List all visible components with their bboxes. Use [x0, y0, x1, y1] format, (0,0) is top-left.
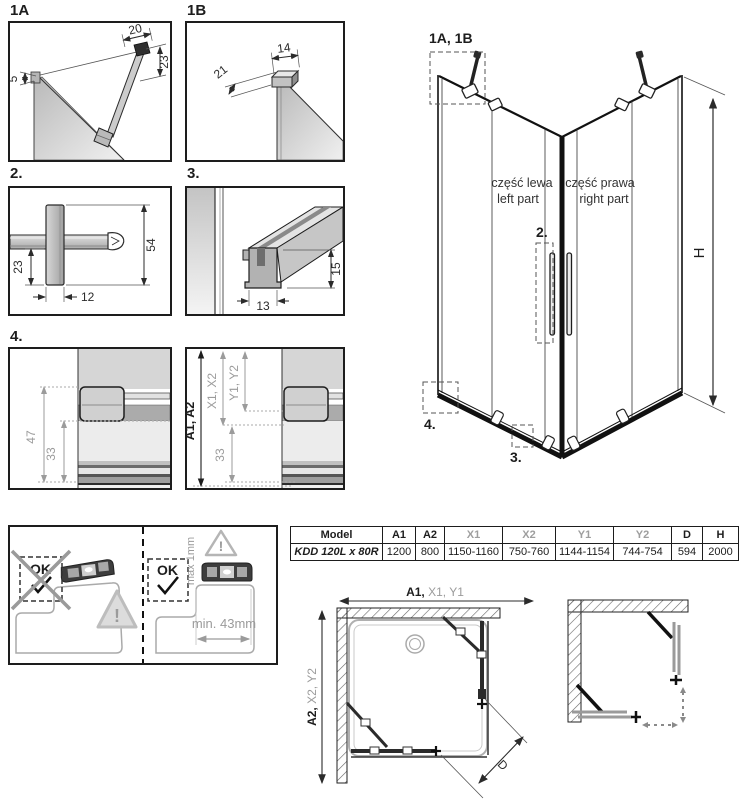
svg-text:15: 15: [329, 262, 343, 276]
dim-14: 14: [270, 40, 300, 75]
spec-table: Model A1 A2 X1 X2 Y1 Y2 D H KDD 120L x 8…: [290, 526, 739, 561]
left-part-label-pl: część lewa: [491, 176, 552, 190]
spec-value-row: KDD 120L x 80R 1200 800 1150-1160 750-76…: [291, 544, 739, 561]
glass-pane: [187, 188, 215, 314]
right-wall-support: [614, 50, 655, 111]
left-wall-support: [462, 50, 503, 111]
col-model: Model: [291, 527, 383, 544]
callout-3-label: 3.: [510, 449, 522, 465]
callout-2-label: 2.: [536, 224, 548, 240]
wall-left: [568, 600, 581, 722]
svg-text:13: 13: [256, 299, 270, 313]
detail-4-ref: 4.: [10, 328, 23, 345]
col-y1: Y1: [556, 527, 614, 544]
dim-23: 23: [11, 249, 44, 285]
svg-text:A2, X2, Y2: A2, X2, Y2: [305, 668, 319, 726]
support-bar-right: [648, 612, 672, 638]
svg-text:23: 23: [157, 55, 170, 69]
svg-text:X1, X2: X1, X2: [205, 373, 219, 409]
svg-text:!: !: [114, 606, 120, 626]
leveling-drawing: OK ! OK max 1mm ! min. 43mm: [10, 527, 276, 663]
dim-12: 12: [33, 287, 95, 304]
rail-end-hook: [108, 233, 124, 250]
top-profile-front: [272, 77, 292, 87]
detail-2-drawing: 54 23 12: [10, 188, 170, 314]
dim-depth: A2, X2, Y2: [305, 611, 322, 783]
max-gap-label: max 1mm: [185, 537, 197, 585]
detail-4-right-drawing: A1, A2 X1, X2 Y1, Y2 33: [187, 349, 343, 488]
left-part-label-en: left part: [497, 192, 539, 206]
val-d: 594: [672, 544, 703, 561]
svg-text:54: 54: [144, 238, 158, 252]
callout-1ab-label: 1A, 1B: [429, 30, 473, 46]
col-x2: X2: [503, 527, 556, 544]
bottom-rail-stack: [282, 461, 343, 488]
plan-view: A1, X1, Y1 A2, X2, Y2 D: [295, 585, 545, 800]
glass-lower: [78, 421, 170, 461]
right-part-label-en: right part: [579, 192, 629, 206]
glass-pane: [34, 77, 124, 160]
dim-13: 13: [237, 290, 289, 313]
spirit-level-flat: [202, 563, 252, 581]
detail-3-drawing: 15 13: [187, 188, 343, 314]
col-a2: A2: [416, 527, 445, 544]
check-icon-good: [158, 577, 178, 593]
seal-strip: [328, 393, 343, 399]
detail-1b-panel: 14 21: [185, 21, 345, 162]
svg-text:33: 33: [213, 448, 227, 462]
detail-2-panel: 54 23 12: [8, 186, 172, 316]
wall-support-bar: [107, 50, 144, 137]
wall-bracket: [80, 387, 124, 421]
svg-text:20: 20: [127, 23, 143, 38]
dim-x1-x2: X1, X2: [205, 352, 223, 425]
warning-triangle-outline: !: [206, 531, 236, 555]
col-h: H: [703, 527, 739, 544]
wall-top: [568, 600, 688, 612]
svg-text:23: 23: [11, 260, 25, 274]
detail-3-panel: 15 13: [185, 186, 345, 316]
val-y2: 744-754: [614, 544, 672, 561]
detail-1a-panel: 20 23 5: [8, 21, 172, 162]
svg-text:A1, X1, Y1: A1, X1, Y1: [406, 585, 464, 599]
svg-text:5: 5: [10, 75, 20, 82]
reference-line: [36, 51, 141, 76]
detail-2-ref: 2.: [10, 165, 23, 182]
val-a2: 800: [416, 544, 445, 561]
detail-4-right-panel: A1, A2 X1, X2 Y1, Y2 33: [185, 347, 345, 490]
svg-text:14: 14: [276, 40, 291, 56]
spec-header-row: Model A1 A2 X1 X2 Y1 Y2 D H: [291, 527, 739, 544]
dim-a1-a2: A1, A2: [187, 351, 201, 486]
col-d: D: [672, 527, 703, 544]
col-y2: Y2: [614, 527, 672, 544]
svg-text:12: 12: [81, 290, 95, 304]
right-part-label-pl: część prawa: [565, 176, 635, 190]
svg-text:21: 21: [211, 62, 230, 81]
ok-label-good: OK: [157, 562, 178, 578]
wall-top: [337, 608, 500, 618]
detail-3-ref: 3.: [187, 165, 200, 182]
detail-1a-drawing: 20 23 5: [10, 23, 170, 160]
leveling-panel: OK ! OK max 1mm ! min. 43mm: [8, 525, 278, 665]
val-h: 2000: [703, 544, 739, 561]
val-y1: 1144-1154: [556, 544, 614, 561]
model-name: KDD 120L x 80R: [291, 544, 383, 561]
wall-anchor: [134, 42, 150, 56]
bottom-rail-stack: [78, 461, 170, 488]
detail-1b-drawing: 14 21: [187, 23, 343, 160]
dim-33: 33: [44, 421, 64, 482]
val-x2: 750-760: [503, 544, 556, 561]
svg-text:47: 47: [24, 430, 38, 444]
detail-1b-ref: 1B: [187, 2, 206, 19]
handle-bar: [46, 205, 64, 285]
detail-4-left-panel: 47 33: [8, 347, 172, 490]
seal-strip: [124, 393, 170, 399]
left-door-handle: [550, 253, 555, 335]
svg-text:33: 33: [44, 447, 58, 461]
dim-33: 33: [213, 427, 232, 482]
glass-pane: [277, 81, 343, 160]
svg-text:H: H: [691, 248, 708, 259]
dim-21: 21: [211, 62, 277, 97]
dim-y1-y2: Y1, Y2: [227, 352, 245, 411]
svg-text:Y1, Y2: Y1, Y2: [227, 365, 241, 401]
installation-datasheet-page: 1A 1B 2. 3. 4. 20 23: [0, 0, 750, 800]
wall-left: [337, 608, 347, 783]
glass-lower: [282, 421, 343, 461]
door-opening-schematic: [552, 592, 747, 737]
spirit-level-tilted: [60, 559, 115, 582]
val-a1: 1200: [383, 544, 416, 561]
dim-47: 47: [24, 387, 44, 482]
dim-width: A1, X1, Y1: [340, 585, 533, 601]
val-x1: 1150-1160: [445, 544, 503, 561]
wall-bracket: [284, 387, 328, 421]
svg-text:!: !: [219, 538, 224, 554]
glass-upper: [282, 349, 343, 389]
col-a1: A1: [383, 527, 416, 544]
glass-upper: [78, 349, 170, 389]
col-x1: X1: [445, 527, 503, 544]
svg-text:D: D: [495, 757, 511, 773]
right-door-handle: [567, 253, 572, 335]
detail-4-left-drawing: 47 33: [10, 349, 170, 488]
callout-4-label: 4.: [424, 416, 436, 432]
svg-text:min. 43mm: min. 43mm: [192, 616, 256, 631]
isometric-overview: 1A, 1B 2. 4. 3. część lewa left part czę…: [400, 25, 745, 465]
dim-h: H: [684, 77, 725, 413]
svg-text:A1, A2: A1, A2: [187, 402, 197, 440]
detail-1a-ref: 1A: [10, 2, 29, 19]
